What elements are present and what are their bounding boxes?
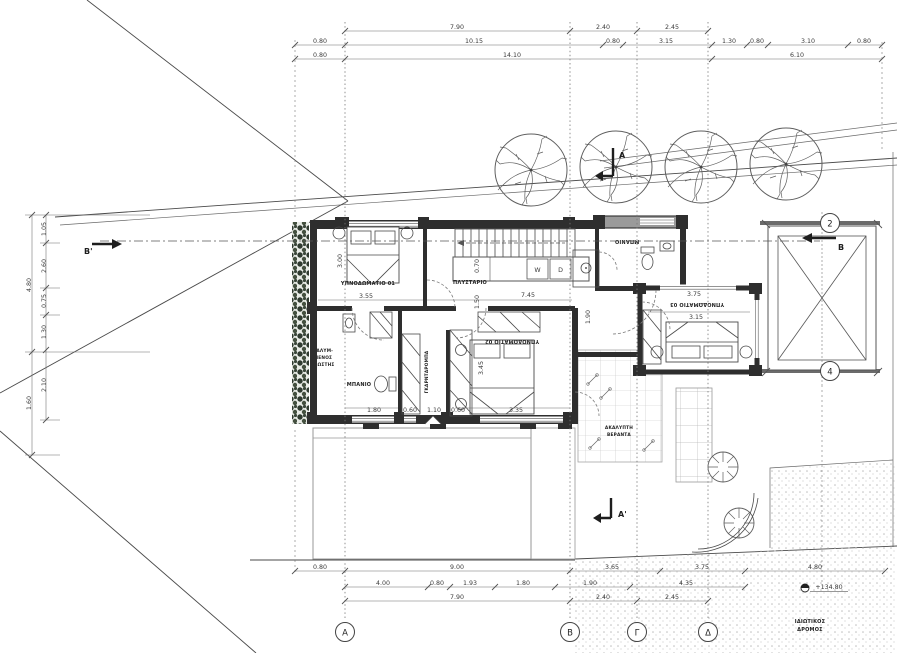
lower-terrace — [313, 428, 575, 559]
dim-text: 3.65 — [605, 564, 619, 571]
dim-text: 2.40 — [596, 24, 610, 31]
grid-bubble-label: Γ — [635, 629, 640, 639]
dim-text: 2.10 — [41, 378, 48, 392]
dimension-top: 7.90 2.40 2.45 0.80 10.15 0.80 3.15 1.30… — [292, 24, 885, 62]
dim-text: 0.60 — [451, 407, 465, 414]
dim-text: 7.90 — [450, 24, 464, 31]
dim-text: 0.75 — [41, 294, 48, 308]
dim-text: 14.10 — [503, 52, 521, 59]
road-label-line2: ΔΡΟΜΟΣ — [797, 627, 823, 633]
dim-text: 0.80 — [750, 38, 764, 45]
dim-text: 10.15 — [465, 38, 483, 45]
room-label-bedroom2: ΥΠΝΟΔΩΜΑΤΙΟ 02 — [485, 338, 541, 344]
dim-text: 7.90 — [450, 594, 464, 601]
dim-text: 2.45 — [665, 24, 679, 31]
grid-bubble-label: B — [567, 629, 573, 639]
toilet-bath1 — [375, 376, 397, 392]
tree-icon — [580, 131, 652, 203]
tree-icon — [665, 131, 737, 203]
sink-bath1 — [343, 314, 355, 332]
dim-text: 4.80 — [808, 564, 822, 571]
dryer-label: D — [558, 267, 563, 274]
section-label-a: A — [619, 151, 626, 160]
bush-icon — [708, 452, 738, 482]
tree-icon — [495, 134, 567, 206]
dim-text: 3.15 — [689, 314, 703, 321]
section-label-b-prime: B' — [84, 247, 93, 256]
staircase — [455, 229, 575, 257]
bed-bedroom3 — [651, 322, 752, 362]
dim-text: 1.05 — [41, 222, 48, 236]
dim-text: 1.50 — [474, 295, 481, 309]
dim-text: 3.15 — [659, 38, 673, 45]
dim-text: 7.45 — [521, 292, 535, 299]
dim-text: 0.80 — [430, 580, 444, 587]
dim-text: 4.00 — [376, 580, 390, 587]
floor-plan-canvas: +134.80 ΙΔΙΩΤΙΚΟΣ ΔΡΟΜΟΣ ΑΚΑΛΥΠΤΗ ΒΕΡΑΝΤ… — [0, 0, 897, 653]
dim-text: 2.40 — [596, 594, 610, 601]
room-label-laundry: ΠΛΥΣΤΑΡΙΟ — [453, 280, 487, 286]
dim-text: 0.80 — [313, 564, 327, 571]
dim-text: 3.55 — [359, 293, 373, 300]
dim-text: 1.80 — [516, 580, 530, 587]
section-label-b: B — [838, 243, 844, 252]
road-label-line1: ΙΔΙΩΤΙΚΟΣ — [795, 619, 826, 625]
dim-text: 3.10 — [801, 38, 815, 45]
room-label-bedroom1: ΥΠΝΟΔΩΜΑΤΙΟ 01 — [340, 281, 396, 287]
sink-bath2 — [660, 241, 674, 251]
floor-plan-page: +134.80 ΙΔΙΩΤΙΚΟΣ ΔΡΟΜΟΣ ΑΚΑΛΥΠΤΗ ΒΕΡΑΝΤ… — [0, 0, 897, 653]
dim-text: 3.75 — [695, 564, 709, 571]
room-label-bath1: ΜΠΑΝΙΟ — [347, 382, 372, 388]
dim-text: 4.80 — [26, 278, 33, 292]
grid-bubble-label: 4 — [827, 368, 832, 378]
side-planter-tiles — [676, 388, 712, 482]
dim-text: 3.00 — [337, 254, 344, 268]
level-marker: +134.80 — [801, 584, 848, 592]
dim-text: 9.00 — [450, 564, 464, 571]
dim-text: 1.80 — [367, 407, 381, 414]
dim-text: 0.80 — [313, 52, 327, 59]
dim-text: 1.90 — [585, 310, 592, 324]
dim-text: 1.10 — [427, 407, 441, 414]
dim-text: 2.45 — [665, 594, 679, 601]
dim-text: 3.45 — [478, 361, 485, 375]
dim-text: 0.60 — [403, 407, 417, 414]
dim-text: 6.10 — [790, 52, 804, 59]
room-label-veranda-2: ΒΕΡΑΝΤΑ — [607, 432, 631, 438]
dim-text: 1.30 — [41, 325, 48, 339]
dim-text: 0.80 — [857, 38, 871, 45]
level-value: +134.80 — [815, 584, 842, 591]
dim-text: 1.60 — [26, 396, 33, 410]
bed-bedroom2 — [456, 340, 535, 414]
dim-text: 1.93 — [463, 580, 477, 587]
section-label-a-prime: A' — [618, 510, 627, 519]
dim-text: 0.70 — [474, 259, 481, 273]
dim-text: 0.80 — [606, 38, 620, 45]
dim-text: 4.35 — [679, 580, 693, 587]
room-label-wardrobe: ΓΚΑΡΝΤΑΡΟΜΠΑ — [424, 350, 430, 393]
dim-text: 3.75 — [687, 291, 701, 298]
washer-label: W — [534, 267, 541, 274]
dim-text: 1.90 — [583, 580, 597, 587]
grid-bubble-label: 2 — [827, 220, 832, 230]
toilet-bath2 — [641, 247, 654, 270]
dim-text: 0.80 — [313, 38, 327, 45]
grid-bubble-label: Δ — [705, 629, 711, 639]
room-label-bedroom3: ΥΠΝΟΔΩΜΑΤΙΟ 03 — [670, 301, 726, 307]
dim-text: 3.35 — [509, 407, 523, 414]
grid-bubble-label: A — [342, 629, 348, 639]
dim-text: 2.60 — [41, 259, 48, 273]
dim-text: 1.30 — [722, 38, 736, 45]
room-label-veranda-1: ΑΚΑΛΥΠΤΗ — [605, 425, 633, 431]
